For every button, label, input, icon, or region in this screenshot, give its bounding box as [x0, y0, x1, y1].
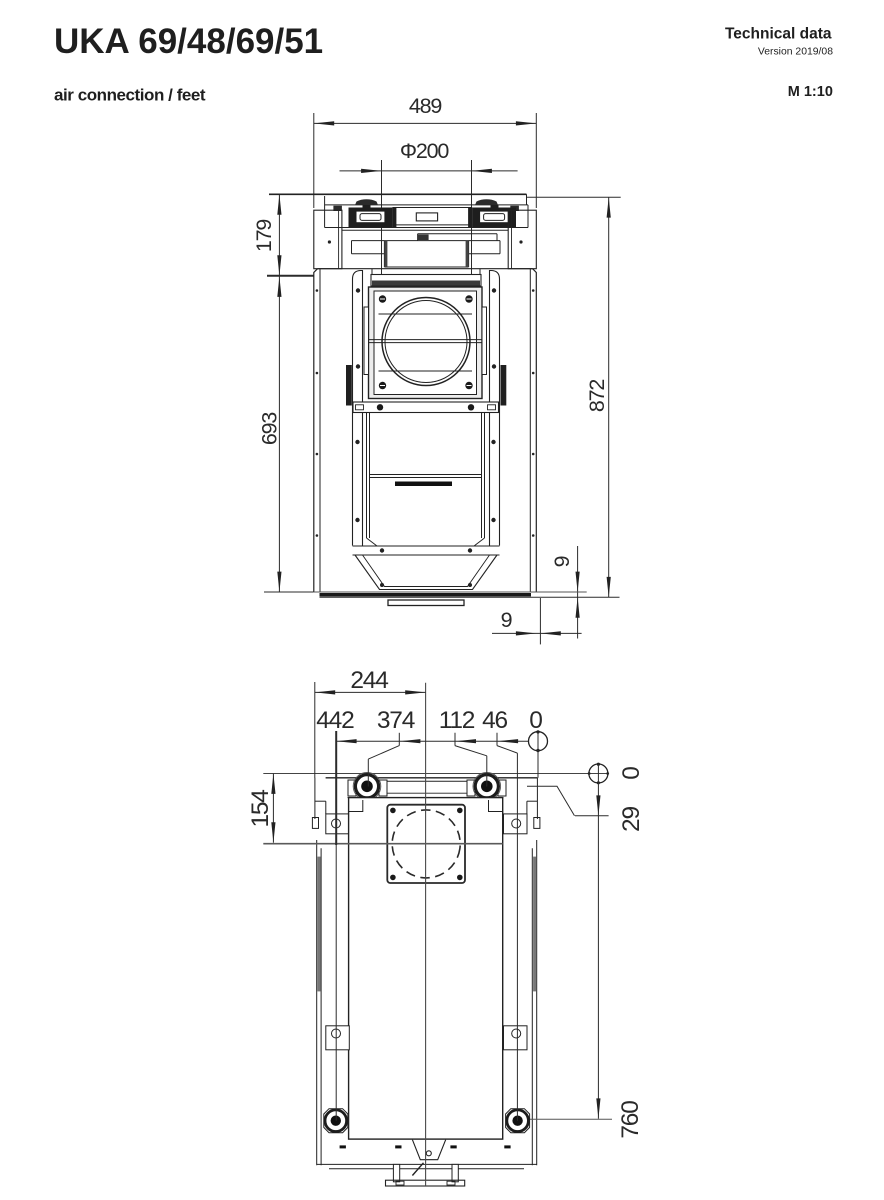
- svg-text:46: 46: [482, 707, 507, 734]
- svg-text:9: 9: [550, 556, 574, 567]
- svg-text:Technical data: Technical data: [725, 26, 832, 43]
- svg-text:489: 489: [409, 94, 442, 118]
- svg-text:air connection / feet: air connection / feet: [54, 86, 206, 105]
- svg-text:Version 2019/08: Version 2019/08: [758, 47, 833, 58]
- svg-text:M 1:10: M 1:10: [788, 84, 833, 100]
- svg-text:244: 244: [350, 667, 388, 694]
- svg-text:9: 9: [501, 608, 512, 632]
- svg-text:0: 0: [618, 767, 645, 780]
- svg-text:29: 29: [618, 807, 645, 832]
- svg-text:374: 374: [377, 707, 415, 734]
- svg-text:154: 154: [247, 790, 274, 828]
- svg-text:0: 0: [529, 707, 542, 734]
- svg-text:872: 872: [585, 380, 609, 413]
- svg-text:112: 112: [439, 707, 475, 734]
- svg-text:760: 760: [617, 1101, 644, 1139]
- svg-text:442: 442: [316, 707, 354, 734]
- svg-text:693: 693: [258, 412, 282, 446]
- svg-text:UKA 69/48/69/51: UKA 69/48/69/51: [54, 22, 323, 61]
- svg-text:179: 179: [252, 220, 276, 253]
- svg-text:Φ200: Φ200: [400, 139, 449, 163]
